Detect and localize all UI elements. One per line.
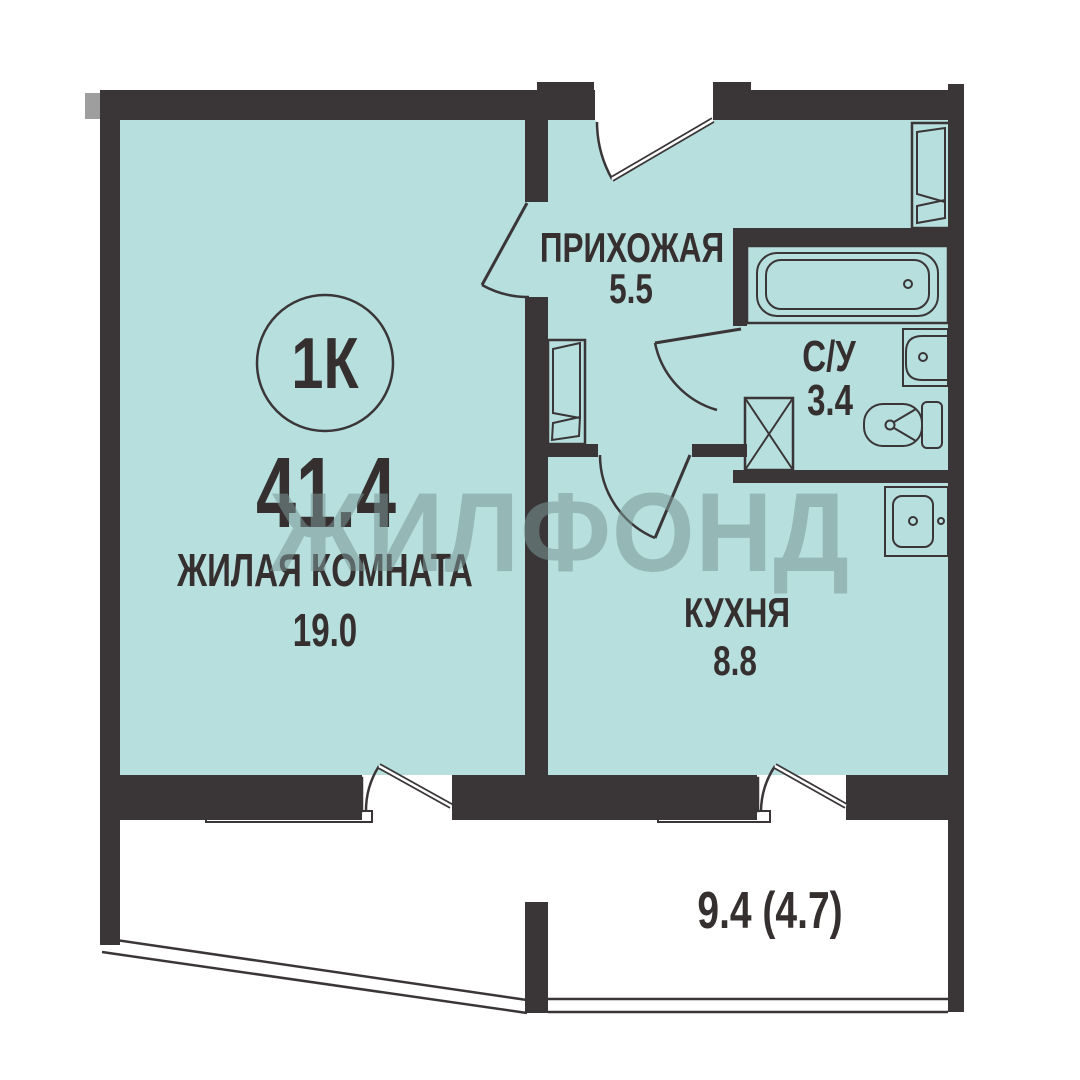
wall-bottom-living [100, 775, 362, 820]
hallway-area: 5.5 [609, 265, 653, 313]
type-badge: 1К [291, 323, 358, 404]
bathroom-name: С/У [802, 333, 856, 382]
wall-bathroom-left [733, 228, 747, 326]
wall-pier [713, 82, 751, 92]
floor-plan: 1К 41.4 ЖИЛАЯ КОМНАТА 19.0 ПРИХОЖАЯ 5.5 … [0, 0, 1080, 1080]
balcony-pillar [525, 902, 548, 1013]
kitchen-name: КУХНЯ [684, 589, 790, 637]
watermark: ЖИЛФОНД [269, 471, 850, 596]
floor-plan-page: 1К 41.4 ЖИЛАЯ КОМНАТА 19.0 ПРИХОЖАЯ 5.5 … [0, 0, 1080, 1080]
wall-top-right [713, 90, 964, 120]
kitchen-area: 8.8 [713, 637, 757, 685]
wall-kitchen-jamb-right [692, 444, 747, 457]
wall-pier [537, 82, 594, 92]
balcony-area: 9.4 (4.7) [697, 880, 842, 939]
wall-bottom-middle [452, 775, 757, 820]
wall-kitchen-jamb-left [525, 444, 598, 457]
wall-top-left [100, 90, 595, 120]
wall-divider-top [525, 120, 548, 202]
wall-bottom-kitchen [846, 775, 964, 820]
wall-bathroom-top [733, 228, 948, 246]
living-room-area: 19.0 [293, 606, 357, 656]
bathroom-area: 3.4 [807, 377, 853, 426]
wall-stub-gray [85, 93, 102, 119]
